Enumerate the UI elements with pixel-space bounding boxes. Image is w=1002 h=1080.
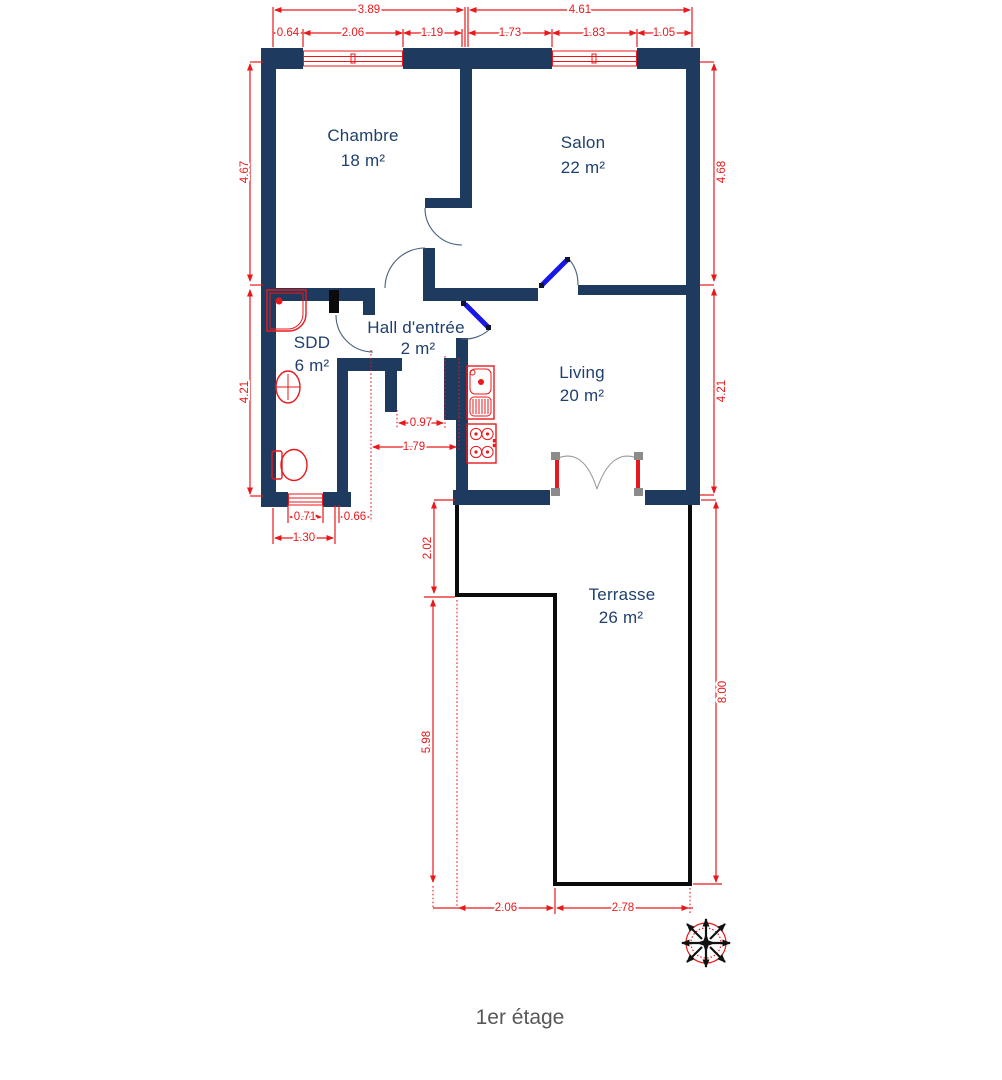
dim-terrace-bottom-right: 2.78 <box>612 902 634 914</box>
dim-top-d1: 0.64 <box>277 27 300 39</box>
door-post <box>634 488 643 496</box>
wall-mid-descender <box>363 299 375 315</box>
room-area-sdd: 6 m² <box>295 356 330 375</box>
dim-top-d2: 2.06 <box>342 27 364 39</box>
wall-niche-top <box>337 358 402 371</box>
wall-right <box>686 48 700 505</box>
wall-kitchen <box>456 338 468 495</box>
door-hinge <box>461 301 466 306</box>
door-leaf-salon <box>542 260 567 285</box>
wall-salon-living <box>578 285 700 295</box>
wall-chambre-salon <box>460 48 472 200</box>
window-sdd <box>288 492 323 507</box>
french-door-arc-right <box>597 456 637 489</box>
dim-terrace-bottom-left: 2.06 <box>495 902 517 914</box>
french-door-leaf-left <box>555 458 559 490</box>
dim-sdd-width: 1.30 <box>293 532 315 544</box>
window-chambre <box>303 48 403 69</box>
door-arc-chambre-salon <box>425 208 462 245</box>
door-tip <box>486 325 491 330</box>
door-leaf-entrance <box>465 304 488 327</box>
room-area-living: 20 m² <box>560 386 605 405</box>
room-area-salon: 22 m² <box>561 158 606 177</box>
dim-left-upper: 4.67 <box>239 161 251 183</box>
door-post <box>551 488 560 496</box>
french-door-leaf-right <box>636 458 640 490</box>
dim-right-lower: 4.21 <box>716 380 728 402</box>
door-arc-chambre-hall <box>385 248 425 288</box>
door-tip <box>565 257 570 262</box>
dimensions: 3.89 4.61 0.64 2.06 1.19 1.73 1.83 1.05 … <box>239 4 729 914</box>
dim-right-upper: 4.68 <box>716 161 728 183</box>
french-doors <box>551 452 643 496</box>
stove-icon <box>467 424 496 463</box>
room-label-sdd: SDD <box>294 333 331 352</box>
room-label-terrasse: Terrasse <box>589 585 656 604</box>
room-area-hall: 2 m² <box>401 339 436 358</box>
room-label-salon: Salon <box>561 133 605 152</box>
window-salon <box>552 48 637 69</box>
compass-rose-icon <box>682 919 730 967</box>
dim-top-d5: 1.83 <box>583 27 605 39</box>
wall-jog <box>425 198 472 208</box>
dim-terrace-step: 2.02 <box>422 537 434 559</box>
terrace-outline <box>457 505 690 884</box>
dim-top-d6: 1.05 <box>653 27 675 39</box>
room-label-hall: Hall d'entrée <box>367 318 465 337</box>
door-post <box>634 452 643 460</box>
door-post <box>551 452 560 460</box>
kitchen-fixtures <box>467 366 496 463</box>
wall-living-bottom-right <box>645 490 700 505</box>
dim-top-d3: 1.19 <box>421 27 443 39</box>
dim-right-terrace: 8.00 <box>717 681 729 703</box>
floor-plan-canvas: 3.89 4.61 0.64 2.06 1.19 1.73 1.83 1.05 … <box>0 0 1002 1080</box>
dim-hall-opening: 0.97 <box>410 417 432 429</box>
door-arc-salon <box>568 258 578 285</box>
toilet-icon <box>272 450 307 481</box>
door-hinge <box>539 283 544 288</box>
duct-stub <box>329 290 339 313</box>
french-door-arc-left <box>558 456 597 489</box>
wall-divider-lower <box>423 248 435 289</box>
door-arc-entrance <box>461 329 490 339</box>
floor-plan-page: 3.89 4.61 0.64 2.06 1.19 1.73 1.83 1.05 … <box>0 0 1002 1080</box>
room-area-chambre: 18 m² <box>341 151 386 170</box>
wall-niche-right <box>385 371 397 412</box>
room-label-chambre: Chambre <box>327 126 398 145</box>
dim-sdd-opening: 0.66 <box>344 511 366 523</box>
floor-caption: 1er étage <box>476 1006 565 1029</box>
wall-left <box>261 48 276 507</box>
dim-terrace-left: 5.98 <box>421 731 433 753</box>
walls <box>261 48 700 507</box>
room-area-terrasse: 26 m² <box>599 608 644 627</box>
kitchen-sink-icon <box>467 366 494 419</box>
dim-top-right-overall: 4.61 <box>569 4 591 16</box>
dim-top-left-overall: 3.89 <box>358 4 380 16</box>
room-label-living: Living <box>559 363 605 382</box>
wall-mid-center <box>423 288 538 301</box>
wall-kitchen-stub <box>444 358 456 420</box>
dim-sdd-window: 0.71 <box>294 511 316 523</box>
washbasin-icon <box>276 371 300 403</box>
dim-left-lower: 4.21 <box>239 381 251 403</box>
dim-hall-width: 1.79 <box>403 441 425 453</box>
dim-top-d4: 1.73 <box>499 27 521 39</box>
wall-sdd-east <box>337 358 348 507</box>
